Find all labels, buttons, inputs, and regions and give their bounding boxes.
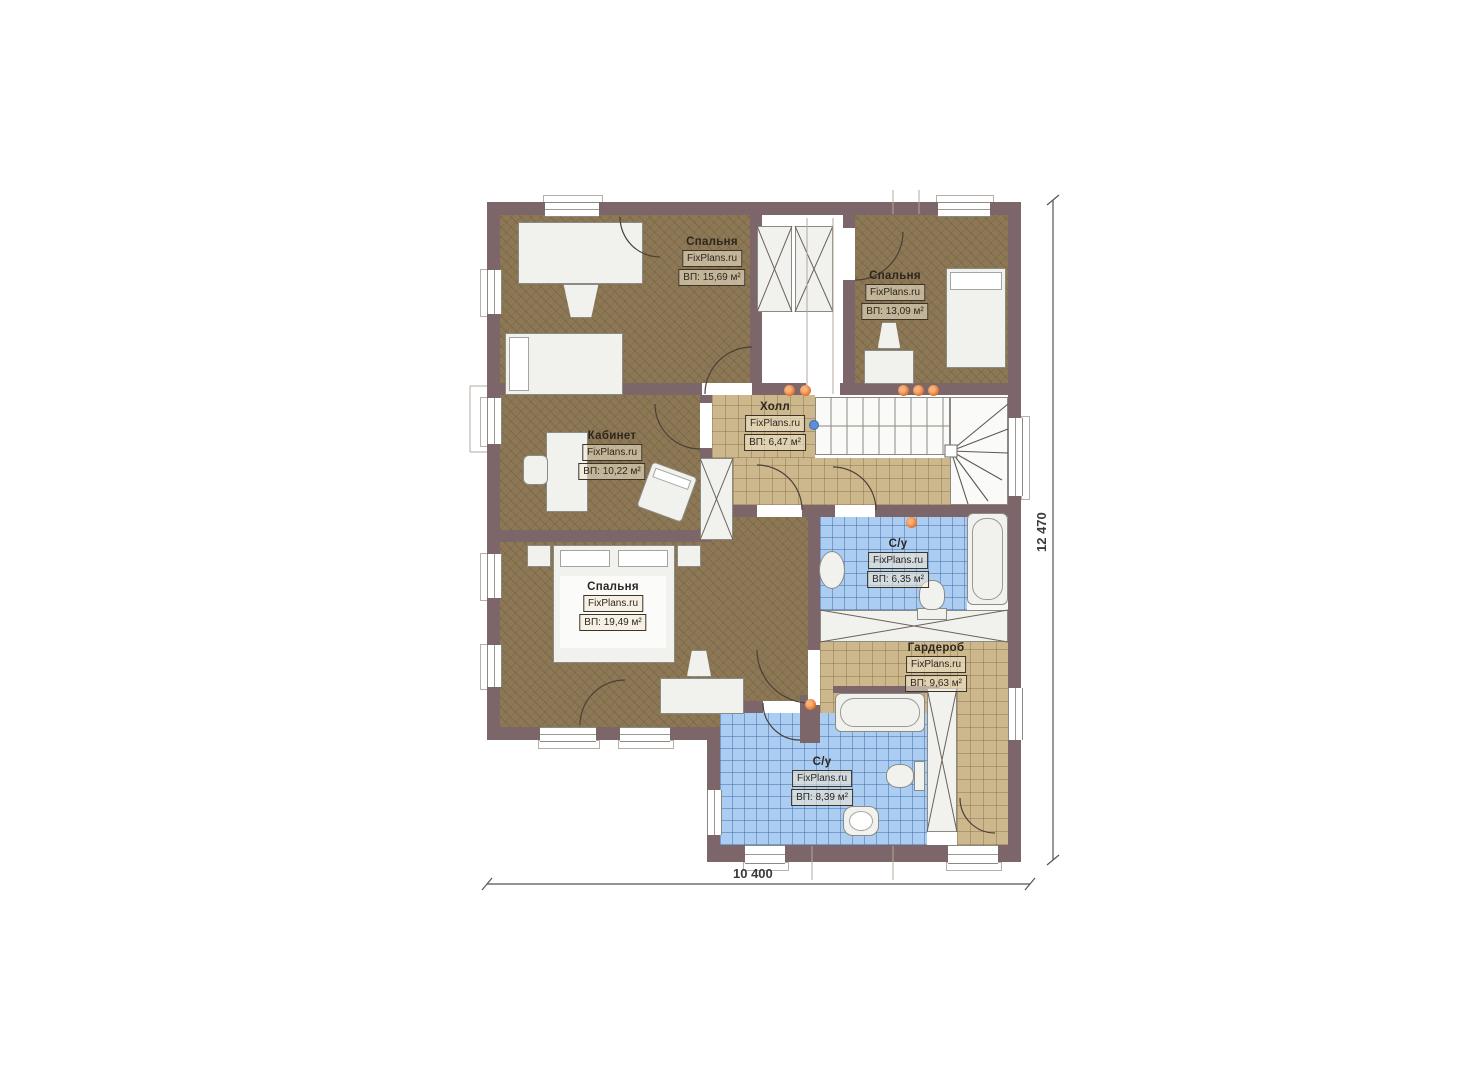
wall (487, 727, 720, 740)
window (487, 554, 502, 598)
window (487, 398, 502, 444)
window (620, 727, 670, 742)
ceiling-light-dot (928, 385, 939, 396)
room-name: Спальня (587, 581, 639, 593)
window (1008, 418, 1023, 496)
closet-shelving (700, 458, 733, 540)
floor-hall-lower (733, 458, 950, 505)
bathtub (835, 693, 925, 732)
window (540, 727, 596, 742)
nightstand (677, 545, 701, 567)
room-brand: FixPlans.ru (868, 552, 928, 569)
room-area: ВП: 15,69 м² (678, 269, 745, 286)
room-name: Холл (760, 401, 790, 413)
sink (843, 806, 879, 836)
room-area: ВП: 9,63 м² (905, 675, 967, 692)
room-name: Гардероб (908, 642, 965, 654)
door-opening (702, 383, 752, 395)
desk (660, 678, 744, 714)
ceiling-light-dot (898, 385, 909, 396)
bathtub (967, 513, 1008, 605)
bed (505, 333, 623, 395)
wall (500, 530, 712, 542)
closet-shelving (757, 226, 792, 312)
bathtub-rim (972, 518, 1003, 600)
room-area: ВП: 19,49 м² (579, 614, 646, 631)
window (938, 202, 990, 217)
window (745, 845, 785, 864)
room-name: С/у (889, 538, 908, 550)
dimension-height-label: 12 470 (1034, 512, 1049, 552)
window (707, 790, 722, 835)
stairs-flight (815, 397, 950, 455)
room-label-bedroom-top-left: Спальня FixPlans.ru ВП: 15,69 м² (678, 236, 745, 286)
room-area: ВП: 6,47 м² (744, 434, 806, 451)
room-label-bedroom-master: Спальня FixPlans.ru ВП: 19,49 м² (579, 581, 646, 631)
door-opening (700, 403, 712, 448)
room-label-hall: Холл FixPlans.ru ВП: 6,47 м² (744, 401, 806, 451)
room-name: Спальня (869, 270, 921, 282)
bathtub-rim (840, 698, 920, 727)
door-opening (835, 505, 875, 517)
room-area: ВП: 8,39 м² (791, 789, 853, 806)
room-area: ВП: 6,35 м² (867, 571, 929, 588)
stair-marker-dot (809, 420, 819, 430)
closet-shelving (795, 226, 833, 312)
room-label-wardrobe: Гардероб FixPlans.ru ВП: 9,63 м² (905, 642, 967, 692)
room-brand: FixPlans.ru (745, 415, 805, 432)
office-chair (523, 455, 548, 485)
room-name: Кабинет (588, 430, 637, 442)
room-brand: FixPlans.ru (682, 250, 742, 267)
toilet-bowl (886, 764, 914, 788)
room-name: Спальня (686, 236, 738, 248)
pillow (618, 550, 668, 567)
window (487, 270, 502, 314)
sink-basin (849, 811, 873, 831)
window (1008, 688, 1023, 740)
room-brand: FixPlans.ru (906, 656, 966, 673)
bed (946, 268, 1006, 368)
room-label-bedroom-top-right: Спальня FixPlans.ru ВП: 13,09 м² (861, 270, 928, 320)
room-brand: FixPlans.ru (792, 770, 852, 787)
dimension-width-label: 10 400 (733, 866, 773, 881)
room-label-bathroom-middle: С/у FixPlans.ru ВП: 6,35 м² (867, 538, 929, 588)
room-name: С/у (813, 756, 832, 768)
ceiling-light-dot (913, 385, 924, 396)
desk (518, 222, 643, 284)
ceiling-light-dot (800, 385, 811, 396)
closet-shelving (927, 688, 957, 832)
desk (864, 350, 914, 384)
room-area: ВП: 10,22 м² (578, 463, 645, 480)
sink (819, 551, 845, 589)
door-opening (806, 383, 840, 395)
window (487, 645, 502, 687)
wall (1008, 202, 1021, 862)
room-label-office: Кабинет FixPlans.ru ВП: 10,22 м² (578, 430, 645, 480)
room-label-bathroom-bottom: С/у FixPlans.ru ВП: 8,39 м² (791, 756, 853, 806)
window (948, 845, 998, 864)
room-brand: FixPlans.ru (865, 284, 925, 301)
room-area: ВП: 13,09 м² (861, 303, 928, 320)
door-opening (843, 228, 855, 280)
ceiling-light-dot (784, 385, 795, 396)
room-brand: FixPlans.ru (583, 595, 643, 612)
door-opening (757, 505, 802, 517)
door-opening (808, 650, 820, 705)
closet-shelving (820, 610, 1008, 642)
pillow (950, 272, 1002, 290)
room-brand: FixPlans.ru (582, 444, 642, 461)
toilet-tank (914, 761, 925, 791)
pillow (509, 337, 529, 391)
pillow (560, 550, 610, 567)
door-opening (763, 701, 800, 713)
window (545, 202, 599, 217)
ceiling-light-dot (805, 699, 816, 710)
stairs-winder (950, 397, 1008, 505)
nightstand (527, 545, 551, 567)
floor-plan-canvas: Спальня FixPlans.ru ВП: 15,69 м² Спальня… (0, 0, 1474, 1080)
ceiling-light-dot (906, 517, 917, 528)
